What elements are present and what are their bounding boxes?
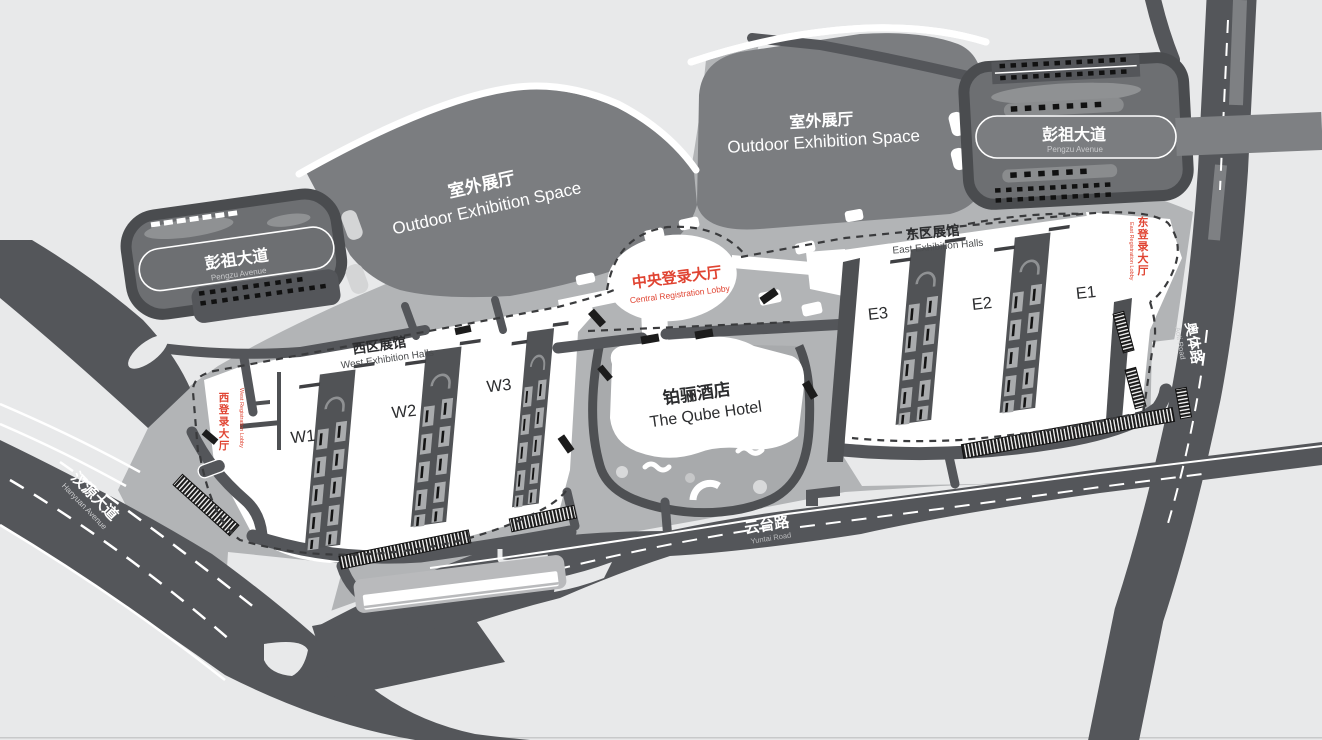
svg-text:东: 东 [1138, 215, 1149, 229]
svg-text:Pengzu Avenue: Pengzu Avenue [1047, 145, 1103, 154]
svg-text:East Registration Lobby: East Registration Lobby [1128, 222, 1134, 281]
svg-text:W1: W1 [290, 427, 316, 447]
svg-text:E3: E3 [867, 304, 889, 324]
svg-text:录: 录 [1138, 240, 1149, 253]
svg-text:W3: W3 [486, 376, 512, 396]
svg-text:登: 登 [218, 403, 230, 416]
svg-text:West Registration Lobby: West Registration Lobby [238, 388, 244, 448]
svg-text:登: 登 [1137, 227, 1150, 241]
svg-text:大: 大 [1138, 251, 1149, 265]
svg-text:西: 西 [219, 392, 230, 404]
svg-text:大: 大 [219, 427, 230, 440]
svg-text:厅: 厅 [1138, 264, 1149, 277]
svg-text:W2: W2 [391, 402, 417, 422]
svg-text:录: 录 [219, 416, 230, 428]
svg-text:彭祖大道: 彭祖大道 [1042, 125, 1106, 144]
svg-text:厅: 厅 [219, 440, 230, 452]
svg-text:E1: E1 [1075, 283, 1097, 303]
svg-text:E2: E2 [971, 294, 993, 314]
